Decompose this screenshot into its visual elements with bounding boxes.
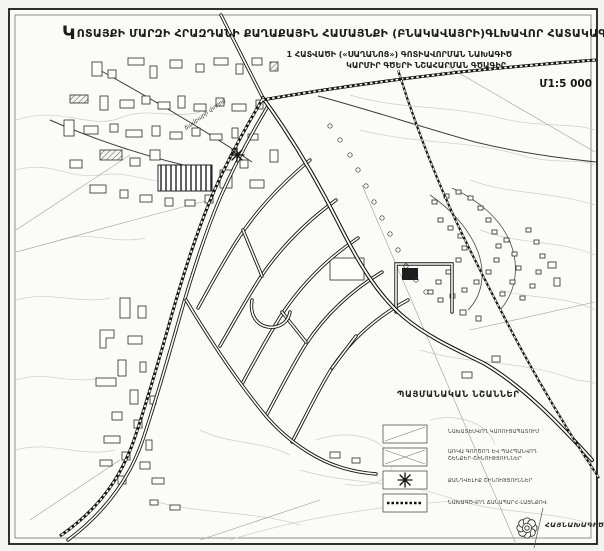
organization-name: ՀԱՅՆԱԽԱԳԻԾ	[545, 521, 604, 529]
legend-item-existing-line1: ԱՌԿԱ ԳՈՐԾՈՂ ԵՎ ՊԱՀՊԱՆՎՈՂ	[448, 449, 537, 456]
legend-header: ՊԱՅՄԱՆԱԿԱՆ ՆՇԱՆՆԵՐ	[397, 390, 520, 400]
title-dropcap: Կ	[62, 22, 76, 44]
legend-item-existing: ԱՌԿԱ ԳՈՐԾՈՂ ԵՎ ՊԱՀՊԱՆՎՈՂՇԵՆՔԵՐ-ՇԻՆՈՒԹՅՈՒ…	[448, 449, 537, 462]
legend-star-icon	[398, 473, 412, 487]
legend-item-road: ՆԱԽԱԳԾՎՈՂ ՃԱՆԱՊԱՐՀ-ԼԱՅՆՔՈՎ	[448, 500, 547, 506]
scanned-map-document: { "header": { "title_dropcap": "Կ", "tit…	[0, 0, 604, 551]
map-scale: Մ1:5 000	[508, 78, 592, 90]
landmark-star-icon	[230, 148, 244, 162]
striped-industrial-hall	[158, 165, 212, 191]
legend-item-demolish: ՔԱՆԴՎԵԼԻՔ ՇԻՆՈՒԹՅՈՒՆՆԵՐ	[448, 478, 532, 484]
dark-facility-block	[402, 268, 418, 280]
legend-item-existing-line2: ՇԵՆՔԵՐ-ՇԻՆՈՒԹՅՈՒՆՆԵՐ	[448, 456, 537, 463]
subtitle-redlines: ԿԱՐՄԻՐ ԳԾԵՐԻ ՆՇԱՀԱՐՄԱՆ ԳԾԱԳԻՐ	[250, 61, 506, 70]
page-title: ԿՈՏԱՅՔԻ ՄԱՐԶԻ ՀՐԱԶԴԱՆԻ ՔԱՂԱՔԱՅԻՆ ՀԱՄԱՅՆՔ…	[62, 22, 604, 44]
legend-item-planned: ՆԱԽԱՏԵՍՎՈՂ ԿԱՌՈՒՑԱՊԱՏՈՒՄ	[448, 429, 539, 435]
title-text: ՈՏԱՅՔԻ ՄԱՐԶԻ ՀՐԱԶԴԱՆԻ ՔԱՂԱՔԱՅԻՆ ՀԱՄԱՅՆՔԻ…	[77, 27, 604, 40]
subtitle-zoning: 1 ՀԱՏՎԱԾԻ («ՍԱՂԱՆՈՑ») ԳՈՏԻԱՎՈՐՄԱՆ ՆԱԽԱԳԻ…	[250, 50, 512, 59]
